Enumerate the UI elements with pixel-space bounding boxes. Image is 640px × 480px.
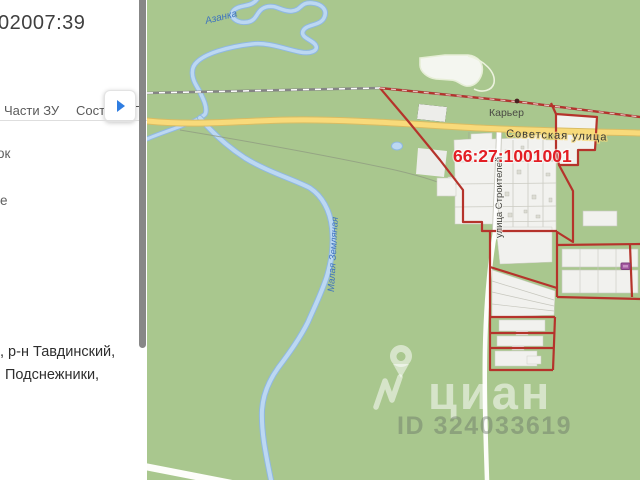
address-line-2: Подснежники, xyxy=(5,364,115,387)
chevron-right-icon xyxy=(117,100,125,112)
map-land xyxy=(147,0,640,480)
pond xyxy=(392,142,403,150)
cadastral-quarter-label: 66:27:1001001 xyxy=(453,146,572,166)
watermark-id: ID 324033619 xyxy=(397,412,572,440)
tab-bar: Части ЗУ Соста П xyxy=(0,0,147,121)
side-panel: 02007:39 Части ЗУ Соста П ок е , р-н Тав… xyxy=(0,0,147,480)
field xyxy=(417,104,447,122)
stroiteley-street-label: улица Строителей xyxy=(494,157,505,238)
tab-parts-zu[interactable]: Части ЗУ xyxy=(4,103,59,118)
tabs-scroll-right-button[interactable] xyxy=(104,90,136,122)
field-value-fragment: ок xyxy=(0,146,10,161)
address-line-1: , р-н Тавдинский, xyxy=(0,341,115,364)
panel-scrollbar[interactable] xyxy=(139,0,146,348)
address-block: , р-н Тавдинский, Подснежники, xyxy=(0,341,115,387)
purple-building-marker[interactable] xyxy=(621,263,630,270)
tabs-divider xyxy=(0,120,147,121)
map-canvas[interactable]: Азанка Малая Земляная Карьер Советская у… xyxy=(147,0,640,480)
railway-halt-dot xyxy=(515,99,520,104)
field-value-fragment: е xyxy=(0,193,8,208)
quarry-label: Карьер xyxy=(489,107,524,119)
